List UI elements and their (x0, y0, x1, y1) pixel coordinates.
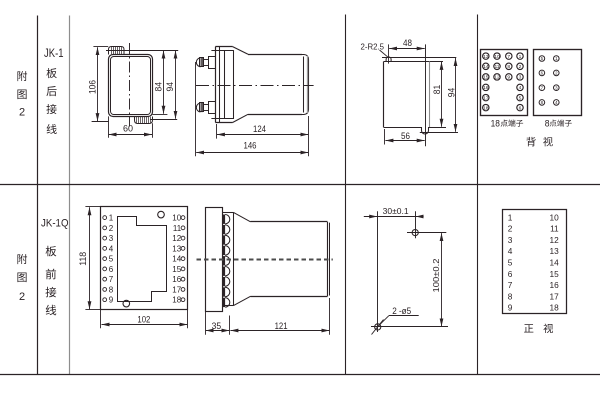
svg-text:10: 10 (494, 54, 500, 60)
svg-text:94: 94 (447, 88, 457, 98)
svg-text:6: 6 (109, 265, 114, 274)
svg-text:10: 10 (549, 212, 559, 222)
svg-text:JK-1Q: JK-1Q (41, 218, 69, 230)
svg-text:11: 11 (550, 224, 559, 234)
svg-text:4: 4 (109, 244, 114, 253)
svg-text:2: 2 (519, 64, 522, 70)
svg-text:7: 7 (507, 54, 510, 60)
svg-text:14: 14 (172, 255, 181, 264)
svg-text:2: 2 (109, 224, 114, 233)
svg-text:17: 17 (549, 291, 559, 301)
svg-text:121: 121 (275, 321, 288, 331)
svg-text:13: 13 (549, 246, 559, 256)
svg-text:8: 8 (109, 285, 114, 294)
svg-text:9: 9 (508, 303, 513, 313)
svg-text:106: 106 (87, 80, 97, 94)
svg-text:2: 2 (19, 291, 25, 303)
svg-text:11: 11 (173, 224, 182, 233)
svg-text:3: 3 (109, 234, 114, 243)
svg-text:18: 18 (549, 303, 559, 313)
svg-text:3: 3 (519, 75, 522, 81)
svg-text:12: 12 (549, 235, 559, 245)
svg-text:15: 15 (483, 75, 489, 81)
svg-text:18: 18 (483, 105, 489, 111)
svg-text:1: 1 (508, 212, 513, 222)
svg-text:81: 81 (432, 85, 442, 95)
svg-text:7: 7 (109, 275, 114, 284)
svg-text:8: 8 (545, 118, 550, 128)
svg-text:2-R2.5: 2-R2.5 (361, 41, 385, 51)
svg-text:17: 17 (172, 285, 181, 294)
svg-text:9: 9 (507, 75, 510, 81)
svg-text:146: 146 (244, 141, 257, 151)
svg-text:8: 8 (508, 291, 513, 301)
svg-text:48: 48 (403, 38, 412, 48)
svg-text:118: 118 (78, 252, 88, 266)
svg-text:JK-1: JK-1 (44, 48, 64, 60)
svg-text:5: 5 (109, 255, 114, 264)
svg-text:102: 102 (137, 314, 150, 324)
svg-text:1: 1 (109, 214, 114, 223)
svg-text:16: 16 (549, 280, 559, 290)
svg-text:124: 124 (253, 124, 266, 134)
svg-text:2: 2 (19, 107, 25, 119)
svg-text:17: 17 (483, 95, 489, 101)
svg-text:12: 12 (172, 234, 181, 243)
svg-text:13: 13 (483, 54, 489, 60)
svg-text:4: 4 (519, 85, 522, 91)
svg-text:8: 8 (507, 64, 510, 70)
svg-text:14: 14 (483, 64, 489, 70)
svg-text:14: 14 (549, 258, 559, 268)
svg-text:30±0.1: 30±0.1 (383, 206, 409, 216)
svg-text:12: 12 (494, 75, 500, 81)
svg-text:5: 5 (508, 258, 513, 268)
svg-text:9: 9 (109, 296, 114, 305)
svg-text:2: 2 (508, 224, 513, 234)
svg-text:16: 16 (172, 275, 181, 284)
svg-text:84: 84 (153, 82, 163, 92)
svg-text:13: 13 (172, 244, 181, 253)
svg-text:6: 6 (519, 105, 522, 111)
svg-text:6: 6 (508, 269, 513, 279)
svg-text:11: 11 (494, 64, 499, 70)
svg-text:7: 7 (508, 280, 513, 290)
svg-text:4: 4 (508, 246, 513, 256)
svg-text:56: 56 (401, 131, 410, 141)
svg-text:94: 94 (165, 82, 175, 92)
svg-text:2 -ø5: 2 -ø5 (392, 306, 411, 316)
svg-text:18: 18 (491, 118, 500, 128)
svg-text:3: 3 (508, 235, 513, 245)
svg-text:35: 35 (212, 321, 222, 331)
svg-text:15: 15 (549, 269, 559, 279)
svg-text:16: 16 (483, 85, 489, 91)
svg-text:1: 1 (519, 54, 522, 60)
svg-text:60: 60 (123, 123, 133, 133)
svg-text:5: 5 (519, 95, 522, 101)
svg-text:100±0.2: 100±0.2 (431, 258, 441, 292)
svg-text:10: 10 (172, 214, 181, 223)
svg-text:15: 15 (172, 265, 181, 274)
svg-text:18: 18 (172, 296, 181, 305)
